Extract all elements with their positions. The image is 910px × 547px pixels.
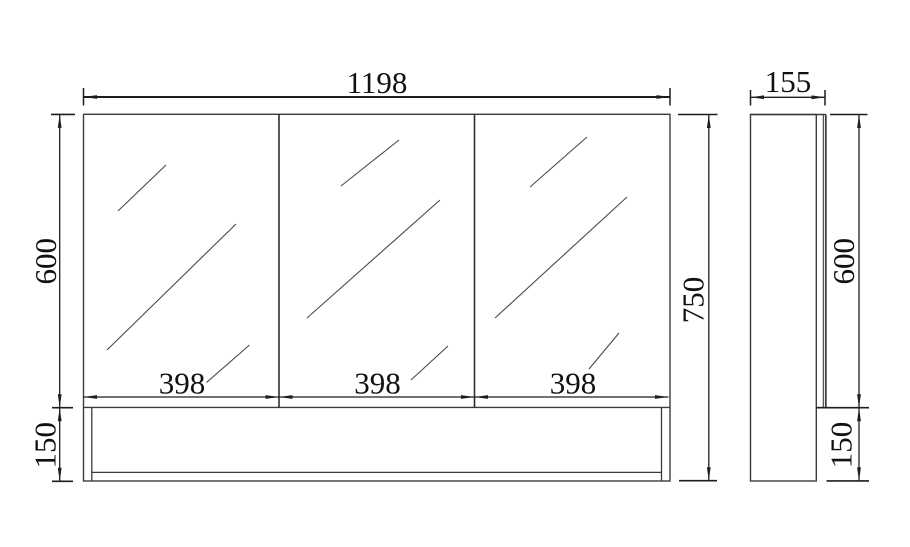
svg-text:600: 600 — [28, 238, 63, 285]
svg-text:600: 600 — [826, 238, 861, 285]
svg-text:398: 398 — [354, 366, 401, 401]
svg-text:750: 750 — [676, 277, 711, 324]
svg-text:150: 150 — [824, 422, 859, 469]
svg-text:155: 155 — [765, 64, 812, 99]
svg-text:398: 398 — [550, 366, 597, 401]
svg-text:150: 150 — [27, 422, 62, 469]
svg-text:1198: 1198 — [347, 65, 408, 100]
svg-text:398: 398 — [159, 366, 206, 401]
